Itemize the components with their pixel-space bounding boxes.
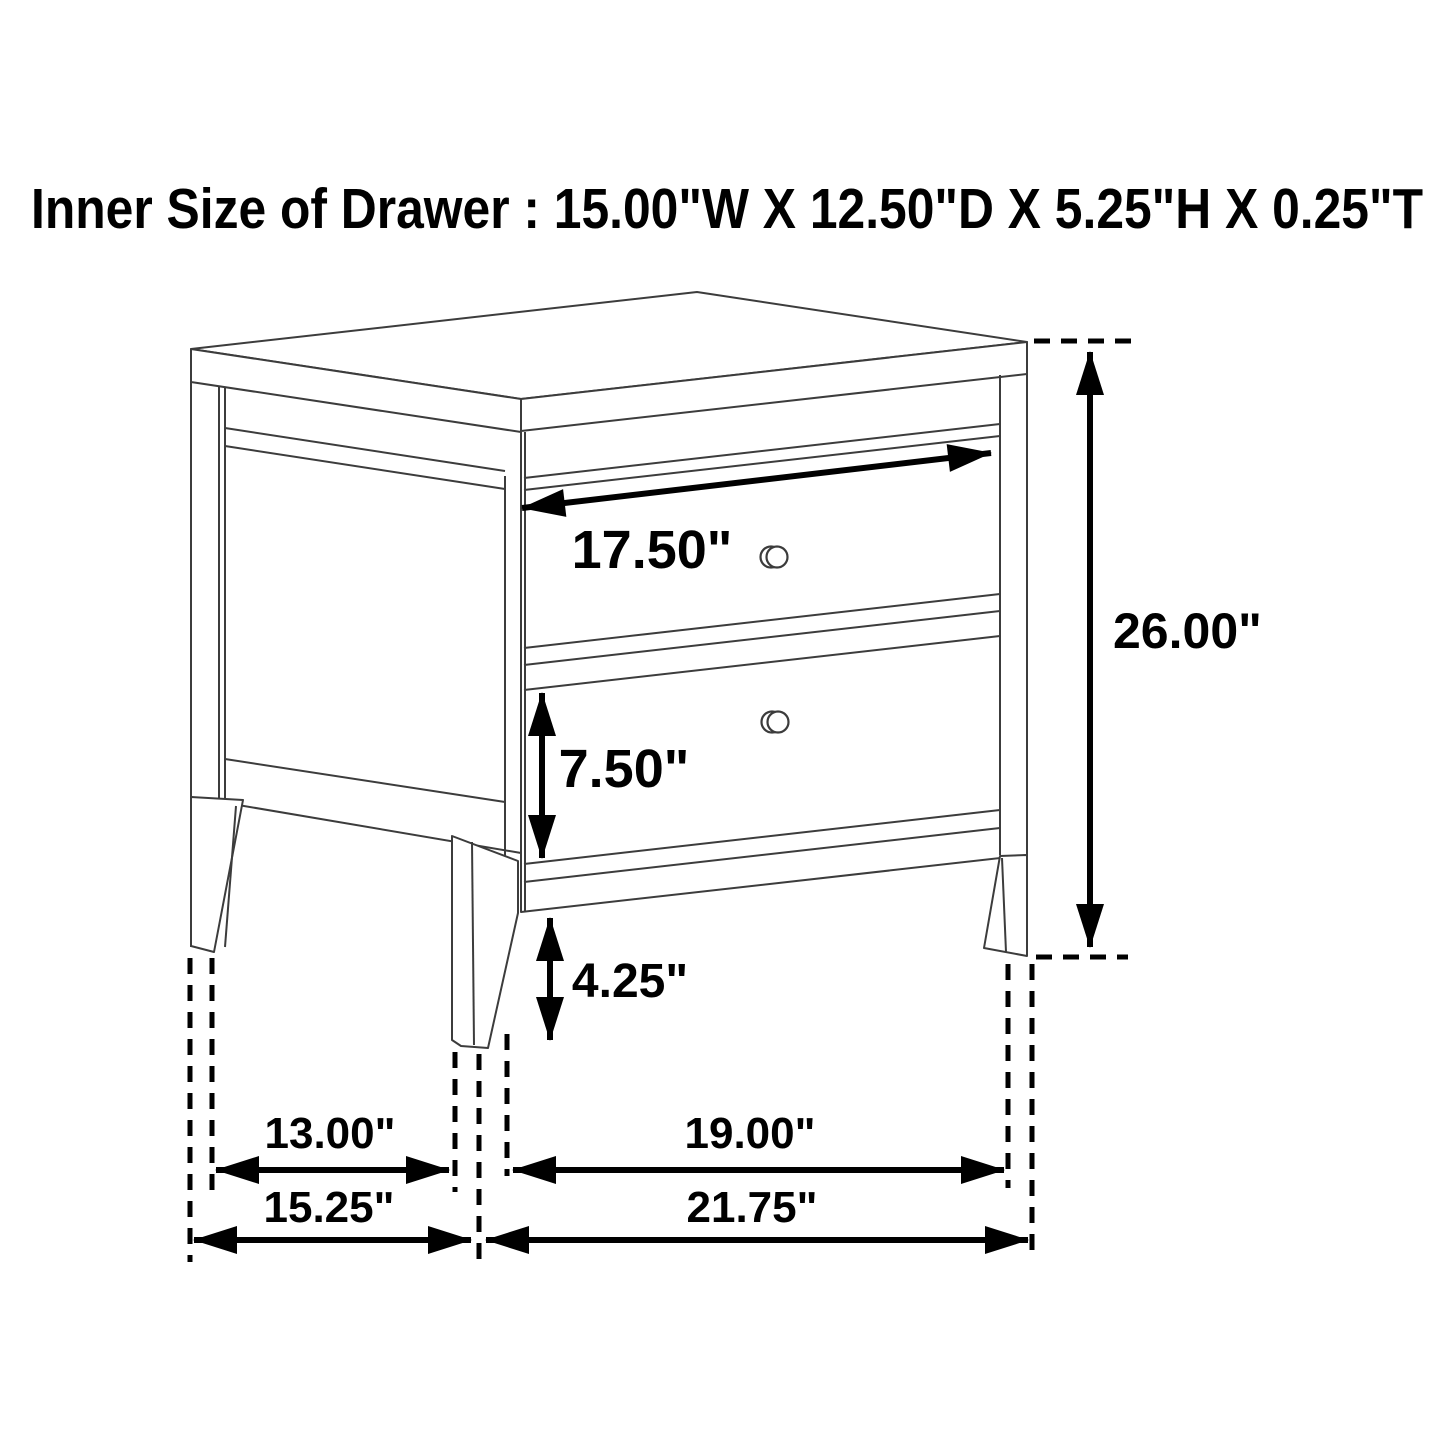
lower-drawer-knob — [768, 712, 789, 733]
diagram-title: Inner Size of Drawer : 15.00"W X 12.50"D… — [31, 177, 1423, 241]
label-lower-drawer-height: 7.50" — [559, 739, 690, 799]
label-front-leg-spacing: 19.00" — [685, 1109, 816, 1158]
diagram-page: Inner Size of Drawer : 15.00"W X 12.50"D… — [0, 0, 1445, 1445]
front-left-leg — [452, 836, 518, 1048]
nightstand-drawing — [191, 292, 1027, 1048]
nightstand-dimension-diagram: Inner Size of Drawer : 15.00"W X 12.50"D… — [0, 0, 1445, 1445]
label-overall-width: 21.75" — [687, 1183, 818, 1232]
label-side-leg-spacing: 13.00" — [265, 1109, 396, 1158]
upper-drawer-knob — [767, 547, 788, 568]
label-drawer-front-width: 17.50" — [572, 520, 733, 580]
label-overall-depth: 15.25" — [264, 1183, 395, 1232]
label-overall-height: 26.00" — [1113, 603, 1262, 659]
label-leg-height: 4.25" — [572, 955, 688, 1008]
